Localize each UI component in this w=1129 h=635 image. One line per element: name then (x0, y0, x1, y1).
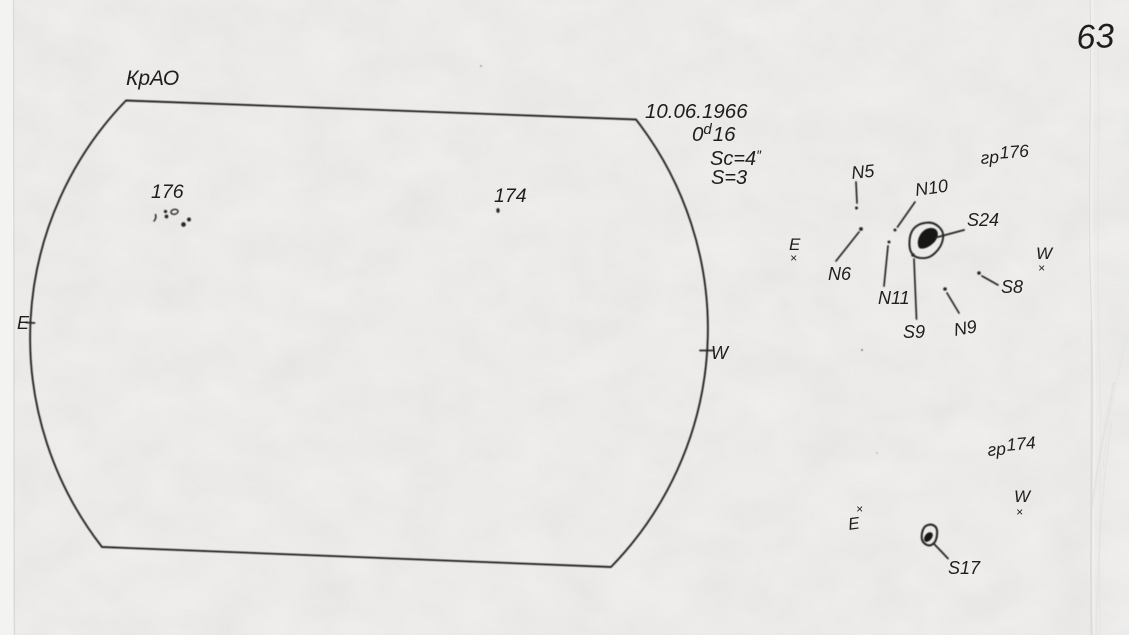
svg-text:S=3: S=3 (711, 167, 747, 189)
svg-text:W: W (1014, 487, 1032, 506)
svg-text:N5: N5 (850, 161, 876, 183)
svg-text:N9: N9 (952, 316, 978, 340)
svg-text:63: 63 (1075, 17, 1115, 57)
svg-text:×: × (1038, 261, 1045, 275)
svg-text:S9: S9 (903, 322, 925, 342)
svg-text:КрАО: КрАО (126, 67, 179, 90)
svg-text:×: × (856, 502, 863, 516)
svg-text:×: × (790, 251, 797, 265)
svg-text:S17: S17 (948, 558, 981, 578)
svg-text:W: W (711, 343, 730, 363)
svg-text:10.06.1966: 10.06.1966 (645, 100, 748, 123)
svg-text:N6: N6 (828, 264, 852, 284)
svg-text:0d16: 0d16 (692, 121, 736, 146)
svg-text:E: E (17, 313, 30, 333)
svg-text:S24: S24 (967, 210, 999, 230)
svg-text:S8: S8 (1001, 277, 1023, 297)
svg-text:×: × (1016, 505, 1023, 519)
svg-text:N11: N11 (878, 288, 910, 308)
svg-text:176: 176 (151, 181, 184, 203)
svg-text:174: 174 (494, 185, 527, 207)
